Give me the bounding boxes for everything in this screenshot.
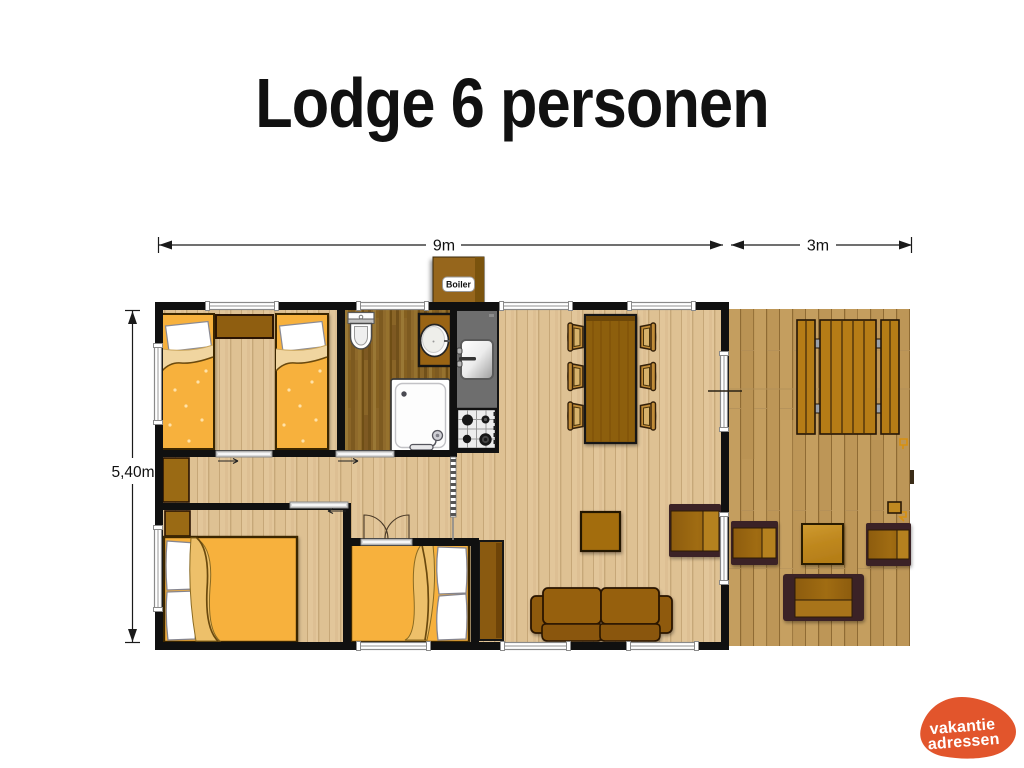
svg-text:Boiler: Boiler (446, 280, 472, 290)
svg-text:9m: 9m (433, 238, 455, 255)
svg-text:3m: 3m (807, 238, 829, 255)
svg-text:5,40m: 5,40m (111, 464, 154, 481)
svg-text:Lodge 6 personen: Lodge 6 personen (255, 63, 768, 142)
